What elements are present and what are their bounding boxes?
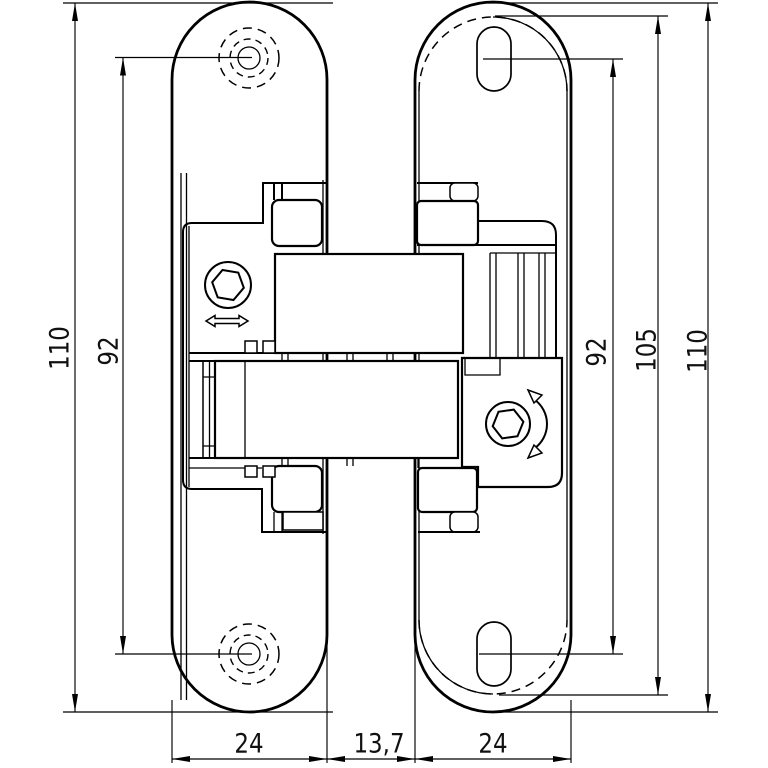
hinge-arm-upper [275, 254, 463, 353]
dim-label-right-slot-spacing: 92 [582, 337, 613, 366]
dim-label-right-cutout-height: 105 [632, 328, 663, 372]
dim-label-bottom-right-width: 24 [478, 729, 507, 760]
hinge-technical-drawing: 110 92 92 105 110 24 13,7 24 [0, 0, 768, 768]
hinge-arm-lower [215, 361, 458, 458]
left-mounting-plate [172, 2, 327, 712]
dim-label-bottom-gap: 13,7 [353, 729, 404, 760]
dim-label-right-total: 110 [683, 329, 714, 373]
hex-socket-icon-left [205, 262, 251, 308]
dim-label-bottom-left-width: 24 [234, 729, 263, 760]
left-hinge-body [183, 183, 328, 532]
dim-label-left-total: 110 [45, 326, 76, 370]
dim-label-left-hole-spacing: 92 [94, 336, 125, 365]
drawing-canvas [0, 0, 768, 768]
lateral-adjustment-arrow-icon [206, 316, 248, 327]
